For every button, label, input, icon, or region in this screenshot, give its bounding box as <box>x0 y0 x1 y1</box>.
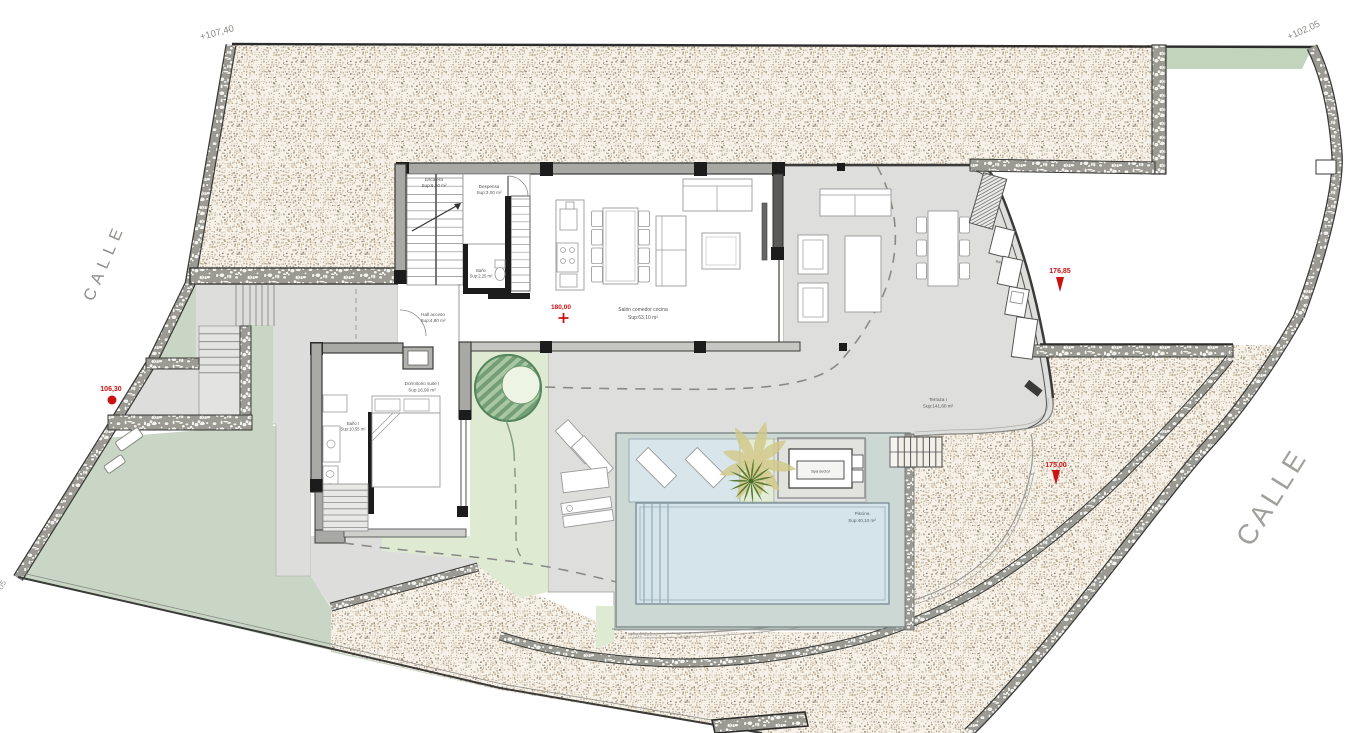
svg-text:Sup:6,00 m²: Sup:6,00 m² <box>421 183 446 188</box>
svg-text:Salón comedor cocina: Salón comedor cocina <box>618 307 668 313</box>
svg-text:106,30: 106,30 <box>100 386 122 393</box>
svg-text:176,85: 176,85 <box>1049 268 1071 275</box>
svg-text:Despensa: Despensa <box>479 184 500 189</box>
svg-text:180,00: 180,00 <box>551 304 571 311</box>
svg-text:Spa sector: Spa sector <box>811 469 831 474</box>
svg-text:Sup:2,25 m²: Sup:2,25 m² <box>470 274 493 279</box>
svg-text:Escalera: Escalera <box>425 177 443 182</box>
svg-text:Dormitorio suite I: Dormitorio suite I <box>405 381 440 386</box>
svg-text:175,00: 175,00 <box>1045 462 1067 469</box>
svg-text:Sup:63,10 m²: Sup:63,10 m² <box>628 315 658 321</box>
svg-text:Sup:4,80 m²: Sup:4,80 m² <box>420 318 445 323</box>
svg-text:Terraza I: Terraza I <box>929 397 947 402</box>
svg-text:Sup:40,10 m²: Sup:40,10 m² <box>848 518 876 523</box>
svg-text:Hall acceso: Hall acceso <box>421 312 445 317</box>
svg-text:Sup:141,60 m²: Sup:141,60 m² <box>923 404 954 409</box>
svg-text:Sup:16,90 m²: Sup:16,90 m² <box>408 388 436 393</box>
svg-text:Sup:10,55 m²: Sup:10,55 m² <box>340 427 366 432</box>
svg-text:Sup:3,00 m²: Sup:3,00 m² <box>476 190 501 195</box>
svg-text:Baño I: Baño I <box>347 421 359 426</box>
svg-text:Piscina: Piscina <box>855 511 870 516</box>
svg-text:Baño: Baño <box>476 268 486 273</box>
